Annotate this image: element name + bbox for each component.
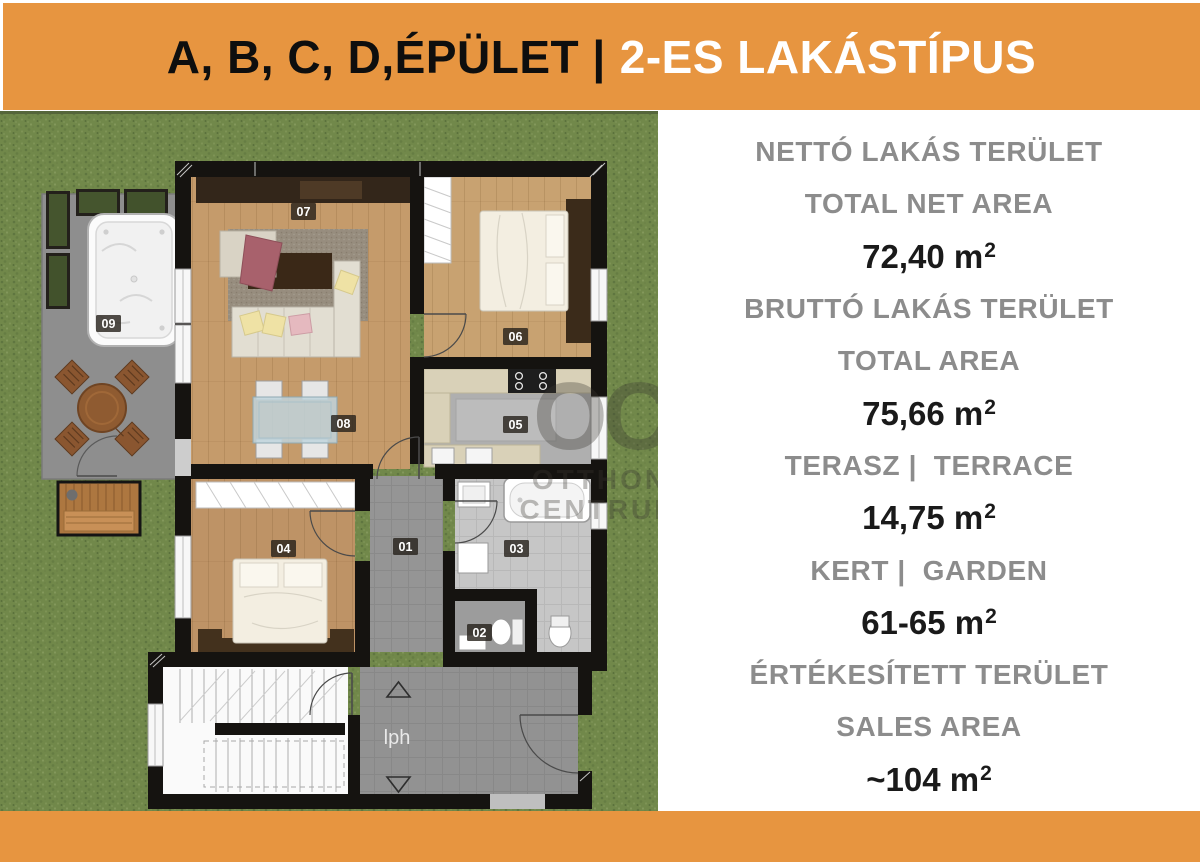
floor-plan: 07 06 05 08 09 04 01 03 02 lph OC OTTHON… [0, 111, 658, 811]
svg-text:OTTHON: OTTHON [532, 464, 658, 495]
footer-bar [0, 811, 1200, 862]
svg-text:01: 01 [399, 540, 413, 554]
room-label-06: 06 [503, 328, 528, 345]
wooden-deck [58, 482, 140, 535]
window [591, 269, 607, 321]
room-label-09: 09 [96, 315, 121, 332]
net-area-label-hu: NETTÓ LAKÁS TERÜLET [658, 126, 1200, 178]
gross-area-number: 75,66 m [862, 395, 983, 433]
sales-area-label-hu: ÉRTÉKESÍTETT TERÜLET [658, 649, 1200, 701]
room-label-07: 07 [291, 203, 316, 220]
svg-text:04: 04 [277, 542, 291, 556]
lph-label: lph [384, 727, 411, 749]
svg-text:07: 07 [297, 205, 311, 219]
room-label-04: 04 [271, 540, 296, 557]
room-label-02: 02 [467, 624, 492, 641]
svg-text:05: 05 [509, 418, 523, 432]
gross-area-label-hu: BRUTTÓ LAKÁS TERÜLET [658, 283, 1200, 335]
title-banner: A, B, C, D,ÉPÜLET | 2-ES LAKÁSTÍPUS [3, 3, 1200, 110]
built-in-wardrobe [196, 482, 355, 508]
room-label-08: 08 [331, 415, 356, 432]
terrace-value: 14,75 m2 [658, 492, 1200, 544]
gross-area-label-en: TOTAL AREA [658, 335, 1200, 387]
svg-text:CENTRUM: CENTRUM [520, 494, 659, 525]
washing-machine [458, 543, 488, 573]
svg-text:06: 06 [509, 330, 523, 344]
bed-headboard [566, 199, 591, 343]
svg-text:03: 03 [510, 542, 524, 556]
sales-area-label-en: SALES AREA [658, 701, 1200, 753]
room-label-01: 01 [393, 538, 418, 555]
garden-label: KERT | GARDEN [658, 544, 1200, 596]
room-label-03: 03 [504, 540, 529, 557]
sales-area-number: ~104 m [866, 761, 979, 799]
entry-threshold [490, 794, 545, 809]
garden-value: 61-65 m2 [658, 597, 1200, 649]
area-info-panel: NETTÓ LAKÁS TERÜLET TOTAL NET AREA 72,40… [658, 111, 1200, 811]
bed [480, 211, 568, 311]
gross-area-value: 75,66 m2 [658, 387, 1200, 439]
building-title: A, B, C, D,ÉPÜLET | [167, 30, 606, 84]
net-area-value: 72,40 m2 [658, 231, 1200, 283]
built-in-closet [424, 177, 451, 263]
net-area-label-en: TOTAL NET AREA [658, 178, 1200, 230]
terrace-door-opening [175, 439, 191, 476]
window [175, 269, 191, 323]
kitchen-sink [432, 448, 454, 464]
net-area-number: 72,40 m [862, 238, 983, 276]
terrace [42, 189, 188, 479]
bed [233, 559, 327, 643]
svg-text:08: 08 [337, 417, 351, 431]
slide: A, B, C, D,ÉPÜLET | 2-ES LAKÁSTÍPUS [0, 0, 1200, 862]
garden-number: 61-65 m [861, 604, 984, 642]
otthon-centrum-watermark: OC OTTHON CENTRUM [520, 363, 659, 525]
window [175, 325, 191, 383]
apartment-type-title: 2-ES LAKÁSTÍPUS [620, 30, 1036, 84]
nightstand [198, 629, 222, 652]
svg-text:OC: OC [533, 363, 658, 470]
dining-table [253, 397, 337, 443]
wc-toilet [491, 619, 523, 645]
window [175, 536, 191, 618]
window [148, 704, 163, 766]
svg-text:02: 02 [473, 626, 487, 640]
terrace-label: TERASZ | TERRACE [658, 440, 1200, 492]
room-label-05: 05 [503, 416, 528, 433]
terrace-number: 14,75 m [862, 499, 983, 537]
sales-area-value: ~104 m2 [658, 754, 1200, 806]
svg-text:09: 09 [102, 317, 116, 331]
